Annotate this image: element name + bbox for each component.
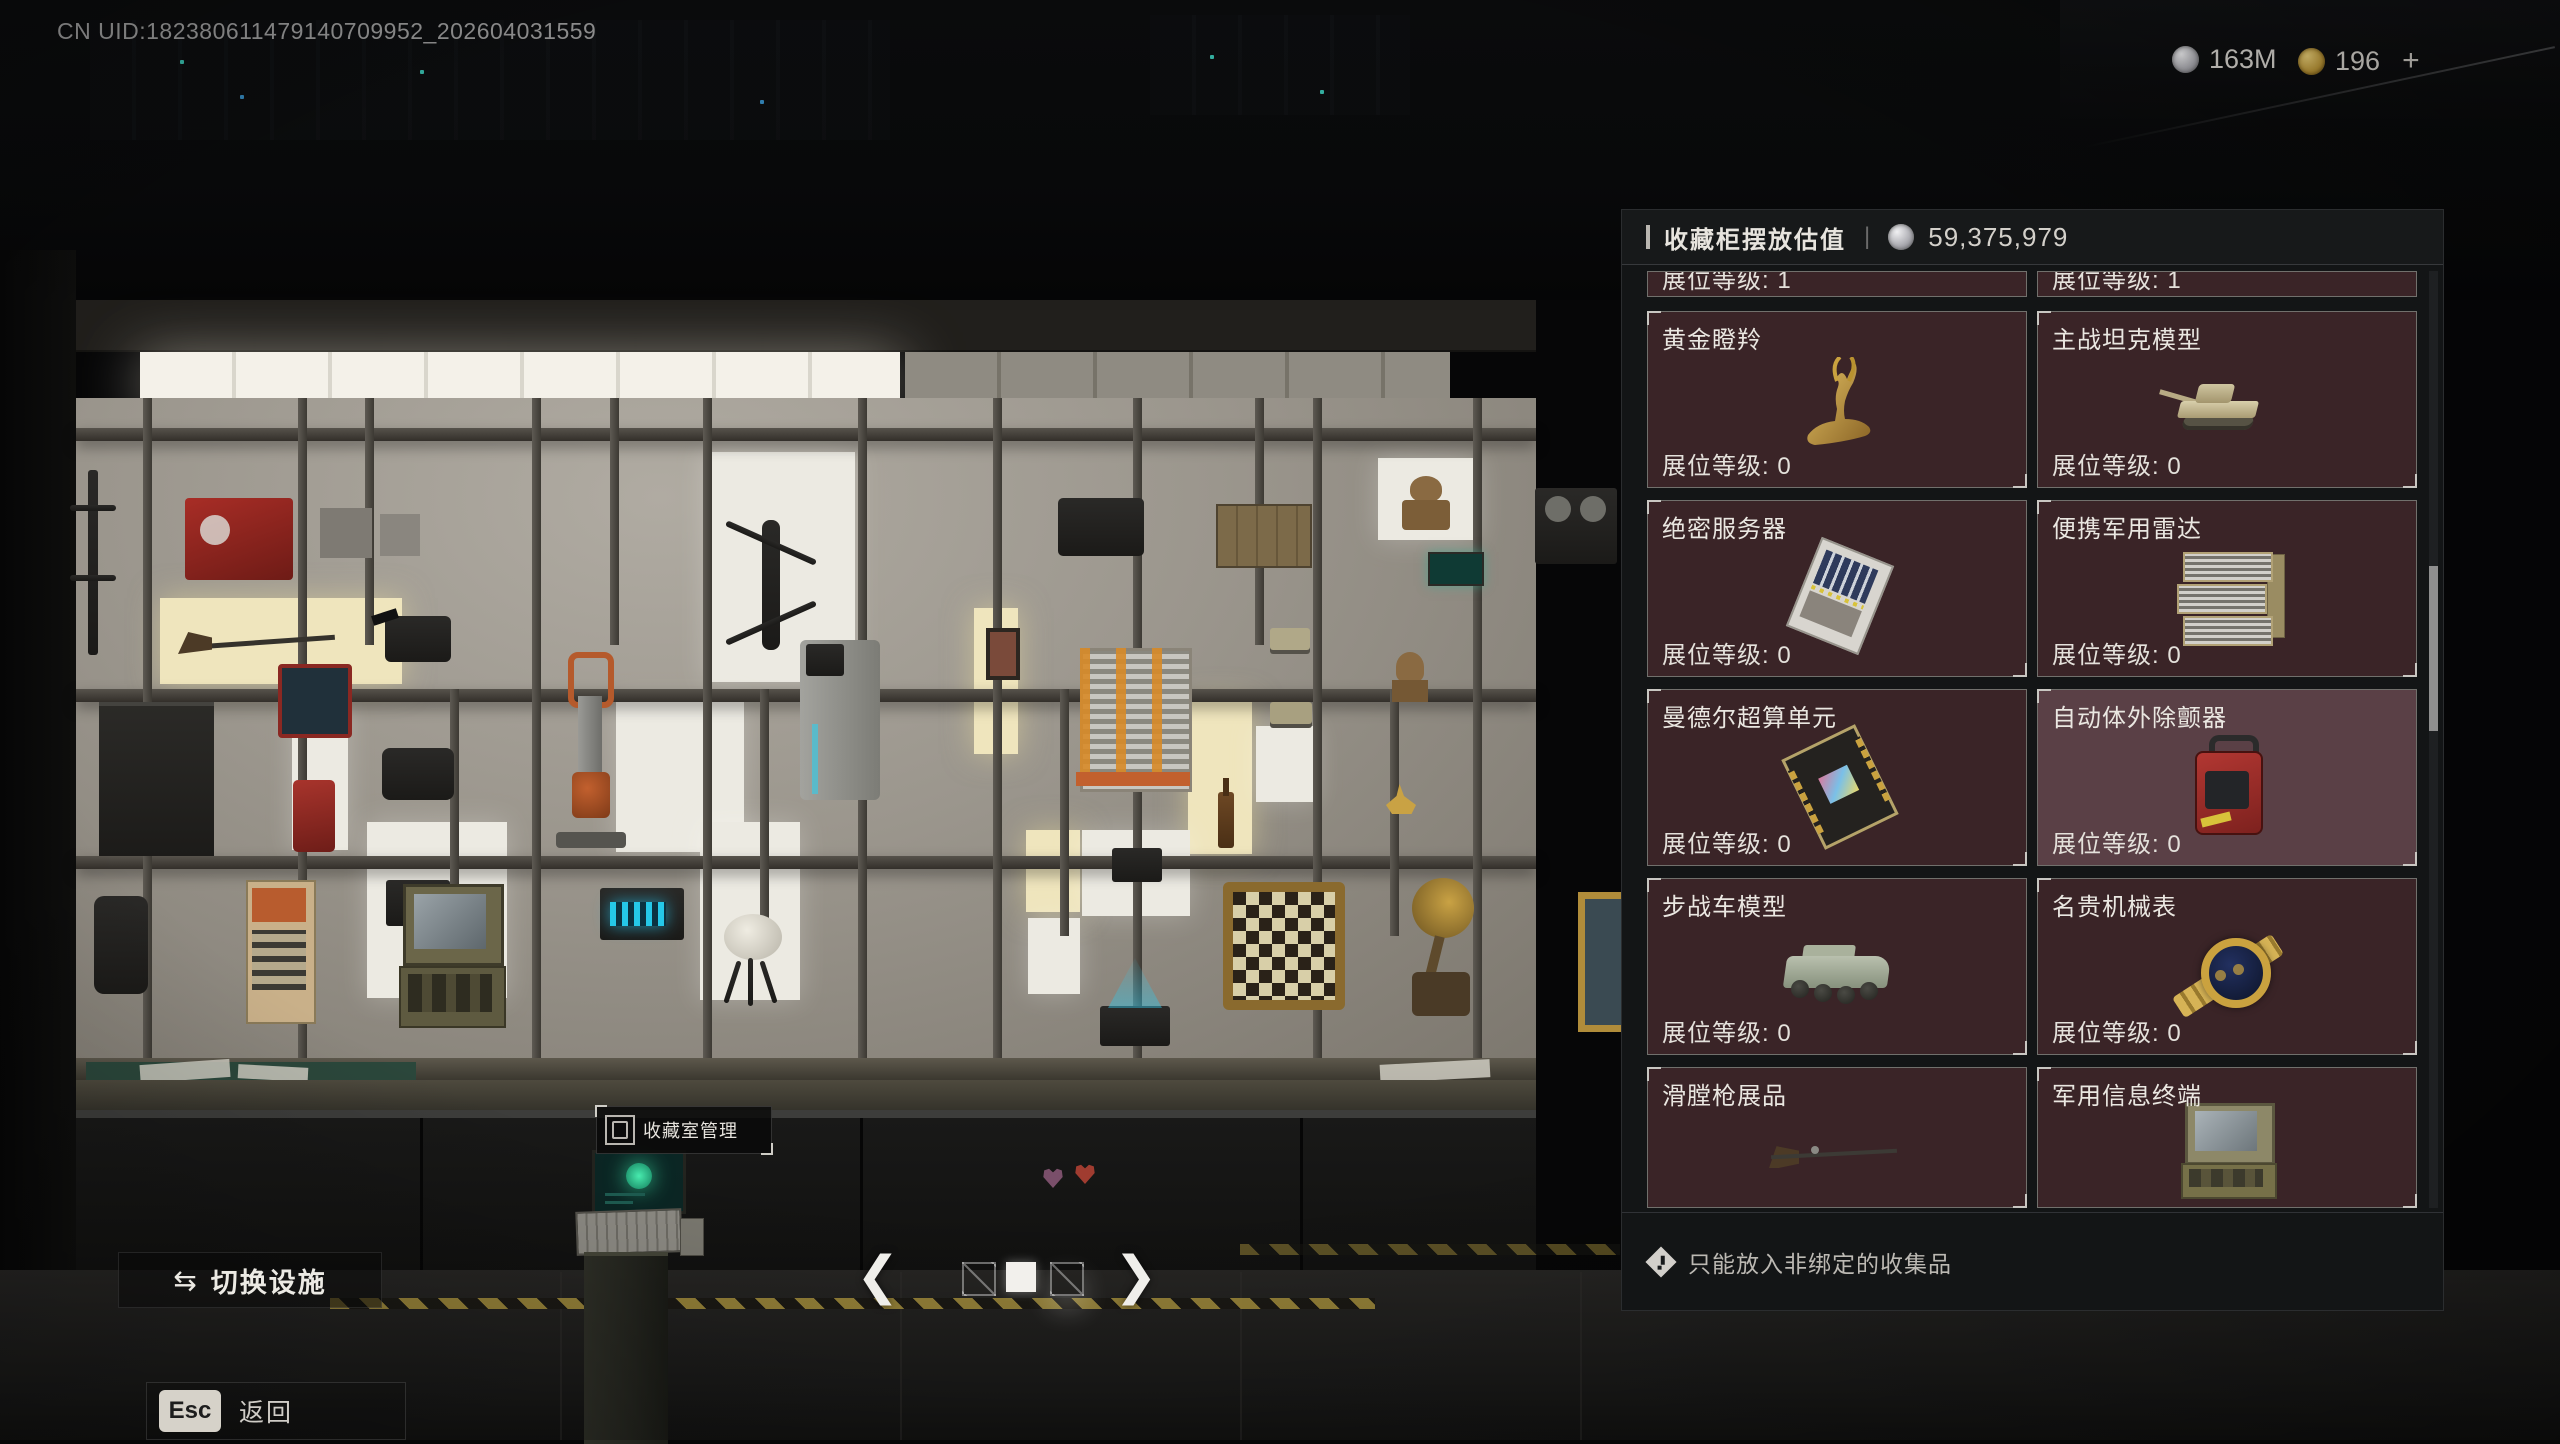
server-led xyxy=(760,100,764,104)
terminal-numpad xyxy=(680,1218,704,1256)
bottle-item xyxy=(1218,792,1234,848)
collection-cabinet-panel: 收藏柜摆放估值 | 59,375,979 展位等级: 1 展位等级: 1 黄金瞪… xyxy=(1621,209,2444,1311)
case-post xyxy=(993,398,1002,1058)
case-post xyxy=(1060,689,1069,936)
counter-top xyxy=(76,1080,1536,1110)
display-level: 展位等级: 0 xyxy=(2052,824,2182,859)
collectible-card-aed-defibrillator[interactable]: 自动体外除颤器 展位等级: 0 xyxy=(2037,689,2417,866)
player-uid: CN UID:182380611479140709952_20260403155… xyxy=(57,18,596,45)
bracket-corner xyxy=(761,1143,773,1155)
green-screen-item xyxy=(1428,552,1484,586)
collectible-card-military-radar[interactable]: 便携军用雷达 展位等级: 0 xyxy=(2037,500,2417,677)
server-led xyxy=(420,70,424,74)
case-post xyxy=(703,398,712,1058)
gramophone-base xyxy=(1412,972,1470,1016)
surgical-robot-screen xyxy=(806,644,844,676)
camera-item xyxy=(385,616,451,662)
aed-defibrillator-icon xyxy=(2157,735,2297,835)
case-post xyxy=(760,689,769,936)
topup-plus-icon[interactable]: + xyxy=(2402,44,2420,78)
drone-arm-item xyxy=(88,470,98,655)
tank-mini-item xyxy=(1270,628,1310,650)
radio-top xyxy=(252,888,306,922)
display-level: 展位等级: 1 xyxy=(1662,271,2026,295)
aed-small-item xyxy=(293,780,335,852)
panel-footer: 只能放入非绑定的收集品 xyxy=(1622,1212,2443,1310)
drone-arm-prop xyxy=(70,575,116,581)
server-led xyxy=(240,95,244,99)
switch-facility-label: 切换设施 xyxy=(211,1261,327,1300)
server-led xyxy=(1320,90,1324,94)
red-device-item xyxy=(185,498,293,580)
gray-panel-item xyxy=(320,508,372,558)
collectible-card-luxury-watch[interactable]: 名贵机械表 展位等级: 0 xyxy=(2037,878,2417,1055)
compute-unit-icon xyxy=(1767,735,1907,835)
back-label: 返回 xyxy=(239,1393,293,1429)
cabinet-rail xyxy=(76,1110,1536,1118)
server-led xyxy=(180,60,184,64)
collectible-name: 黄金瞪羚 xyxy=(1662,320,1762,355)
hazard-stripe xyxy=(1240,1244,1620,1255)
display-level: 展位等级: 0 xyxy=(1662,635,1792,670)
gold-coin-icon xyxy=(2298,48,2325,75)
bronze-statue-base xyxy=(1402,500,1450,530)
collectible-card-musket[interactable]: 滑膛枪展品 xyxy=(1647,1067,2027,1208)
vacuum-canister xyxy=(572,772,610,818)
robot-dock-item xyxy=(99,702,214,856)
page-prev-button[interactable]: ❮ xyxy=(856,1246,900,1306)
display-level: 展位等级: 0 xyxy=(1662,1013,1792,1048)
projector-reel xyxy=(1580,496,1606,522)
projector-reel xyxy=(1545,496,1571,522)
display-level: 展位等级: 0 xyxy=(2052,635,2182,670)
collectible-card-tank-model[interactable]: 主战坦克模型 展位等级: 0 xyxy=(2037,311,2417,488)
silver-currency: 163M xyxy=(2172,44,2277,75)
wall-pouch-item xyxy=(1058,498,1144,556)
gold-currency-value: 196 xyxy=(2335,46,2380,77)
value-coin-icon xyxy=(1888,224,1914,250)
collectible-card-secret-server[interactable]: 绝密服务器 展位等级: 0 xyxy=(1647,500,2027,677)
portable-monitor-item xyxy=(278,664,352,738)
page-dot-2-current[interactable] xyxy=(1006,1262,1036,1292)
swap-icon: ⇆ xyxy=(173,1264,196,1297)
collectible-name: 绝密服务器 xyxy=(1662,509,1787,544)
panel-header: 收藏柜摆放估值 | 59,375,979 xyxy=(1622,210,2443,265)
collectible-grid: 展位等级: 1 展位等级: 1 黄金瞪羚 展位等级: 0 主战坦克模型 xyxy=(1647,271,2419,1208)
divider: | xyxy=(1864,223,1870,251)
military-radar-icon xyxy=(2157,546,2297,646)
terminal-screen xyxy=(592,1150,686,1214)
collectible-name: 军用信息终端 xyxy=(2052,1076,2202,1111)
bronze-bust-item xyxy=(1396,652,1424,682)
panel-title: 收藏柜摆放估值 xyxy=(1664,220,1846,255)
cabinet-seam xyxy=(420,1118,423,1270)
gray-panel-item xyxy=(380,514,420,556)
collectible-card-terminal-case[interactable]: 军用信息终端 xyxy=(2037,1067,2417,1208)
server-racks xyxy=(1150,15,1410,115)
tank-model-icon xyxy=(2157,357,2297,457)
luxury-watch-icon xyxy=(2157,924,2297,1024)
floor-seam xyxy=(1580,1272,1582,1440)
surgical-robot-glow xyxy=(812,724,818,794)
display-level: 展位等级: 0 xyxy=(2052,1013,2182,1048)
backlit-tile xyxy=(1256,726,1316,802)
page-dot-1[interactable] xyxy=(962,1262,996,1296)
terminal-screen-line xyxy=(605,1193,645,1196)
blue-battery-window xyxy=(610,902,666,926)
backlit-tile-warm xyxy=(1026,830,1080,912)
collectible-card-partial[interactable]: 展位等级: 1 xyxy=(2037,271,2417,297)
case-post xyxy=(1473,398,1482,1058)
small-painting-item xyxy=(986,628,1020,680)
display-level: 展位等级: 1 xyxy=(2052,271,2416,295)
chessboard-squares xyxy=(1233,892,1335,1000)
display-level: 展位等级: 0 xyxy=(1662,824,1792,859)
collectible-name: 自动体外除颤器 xyxy=(2052,698,2227,733)
tank-mini-item xyxy=(1270,702,1312,724)
collectible-name: 曼德尔超算单元 xyxy=(1662,698,1837,733)
terminal-pedestal xyxy=(584,1252,668,1444)
panel-scrollbar-thumb[interactable] xyxy=(2429,566,2438,731)
terminal-case-icon xyxy=(2157,1101,2297,1201)
page-next-button[interactable]: ❯ xyxy=(1114,1246,1158,1306)
page-dot-3[interactable] xyxy=(1050,1262,1084,1296)
bronze-statue-head xyxy=(1410,476,1442,502)
dish-tripod-leg xyxy=(748,958,753,1006)
display-cabinet-icon xyxy=(605,1115,635,1145)
footer-note: 只能放入非绑定的收集品 xyxy=(1688,1245,1952,1279)
golden-gazelle-icon xyxy=(1767,357,1907,457)
terminal-screen-line xyxy=(605,1201,633,1204)
collectible-name: 名贵机械表 xyxy=(2052,887,2177,922)
pouch-item xyxy=(382,748,454,800)
room-wall-left xyxy=(0,250,76,1440)
collectible-name: 主战坦克模型 xyxy=(2052,320,2202,355)
bracket-corner xyxy=(595,1105,607,1117)
red-device-logo xyxy=(200,515,230,545)
panel-scrollbar-track[interactable] xyxy=(2429,271,2438,1208)
collectible-card-partial[interactable]: 展位等级: 1 xyxy=(1647,271,2027,297)
collectible-name: 步战车模型 xyxy=(1662,887,1787,922)
radio-slots xyxy=(252,930,306,990)
back-control[interactable]: Esc 返回 xyxy=(146,1382,406,1440)
switch-facility-button[interactable]: ⇆ 切换设施 xyxy=(118,1252,382,1308)
case-post xyxy=(610,398,619,645)
drone-arm-prop xyxy=(70,505,116,511)
bottle-neck xyxy=(1223,778,1229,796)
flask-item xyxy=(94,896,148,994)
display-level: 展位等级: 0 xyxy=(1662,446,1792,481)
case-post xyxy=(532,398,541,1058)
collectible-card-golden-gazelle[interactable]: 黄金瞪羚 展位等级: 0 xyxy=(1647,311,2027,488)
display-level: 展位等级: 0 xyxy=(2052,446,2182,481)
open-case-screen xyxy=(414,894,486,949)
title-tick-icon xyxy=(1646,225,1650,249)
gpu-item xyxy=(1112,848,1162,882)
vacuum-base xyxy=(556,832,626,848)
dish-item xyxy=(724,914,782,960)
hazard-stripe xyxy=(330,1298,1375,1309)
server-led xyxy=(1210,55,1214,59)
ceiling-light-panel-dim xyxy=(905,352,1450,398)
terminal-label-text: 收藏室管理 xyxy=(643,1117,738,1143)
terminal-logo-glow xyxy=(626,1163,652,1189)
battery-module-bar xyxy=(1076,772,1190,786)
terminal-keyboard xyxy=(575,1208,682,1256)
esc-key-badge[interactable]: Esc xyxy=(159,1390,221,1432)
holo-projector-base xyxy=(1100,1006,1170,1046)
case-frame-top xyxy=(76,300,1536,352)
silver-currency-value: 163M xyxy=(2209,44,2277,75)
bronze-bust-base xyxy=(1392,680,1428,702)
ceiling-light-panel xyxy=(140,352,900,398)
battery-module-straps xyxy=(1080,648,1186,786)
warning-diamond-icon xyxy=(1645,1246,1676,1277)
open-case-innards xyxy=(408,974,492,1012)
collectible-card-ifv-model[interactable]: 步战车模型 展位等级: 0 xyxy=(1647,878,2027,1055)
collectible-name: 滑膛枪展品 xyxy=(1662,1076,1787,1111)
collectible-card-compute-unit[interactable]: 曼德尔超算单元 展位等级: 0 xyxy=(1647,689,2027,866)
backlit-tile xyxy=(1028,918,1080,994)
terminal-interact-label[interactable]: 收藏室管理 xyxy=(596,1106,772,1154)
gold-currency[interactable]: 196 + xyxy=(2298,44,2420,78)
secret-server-icon xyxy=(1767,546,1907,646)
collectible-name: 便携军用雷达 xyxy=(2052,509,2202,544)
musket-icon xyxy=(1767,1104,1907,1204)
chessboard-item xyxy=(1223,882,1345,1010)
wood-crate-item xyxy=(1216,504,1312,568)
silver-coin-icon xyxy=(2172,46,2199,73)
topbar: 163M 196 + xyxy=(2060,0,2560,130)
cabinet-total-value: 59,375,979 xyxy=(1928,222,2068,253)
ifv-model-icon xyxy=(1767,924,1907,1024)
gramophone-horn xyxy=(1412,878,1474,938)
